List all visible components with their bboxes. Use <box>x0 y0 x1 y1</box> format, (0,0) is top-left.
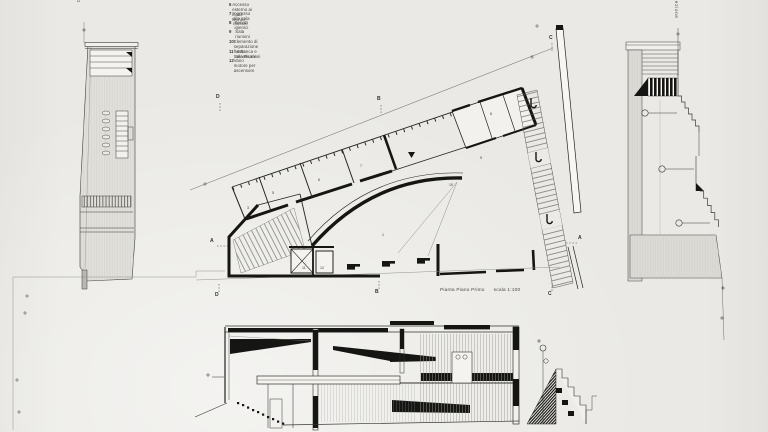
plan-caption-title: Pianta Piano Primo <box>440 289 485 294</box>
section-marker-b-top: B <box>377 97 381 102</box>
plan-caption: Pianta Piano Primo scala 1:100 <box>440 289 520 294</box>
room-number: 9 <box>480 157 482 161</box>
legend-item-text: Sala riunioni <box>235 29 252 39</box>
plan-caption-scale: scala 1:100 <box>494 289 521 294</box>
room-number: 1 <box>382 234 384 238</box>
room-number: 5 <box>272 192 274 196</box>
section-marker-c-top: C <box>549 36 553 41</box>
left-section-drawing <box>80 22 138 289</box>
room-number: 10 <box>449 184 453 188</box>
section-marker-d-top: D <box>216 95 220 100</box>
right-section-title: Sezione <box>672 0 677 19</box>
left-section-title: Sezione D-D <box>74 0 79 3</box>
section-marker-a-right: A <box>578 236 582 241</box>
room-number: 6 <box>318 179 320 183</box>
room-number: 11 <box>302 267 306 271</box>
legend-item: 12 Vano motore per ascensore <box>229 58 259 73</box>
right-section-drawing <box>626 28 725 340</box>
bottom-section-drawing <box>195 321 597 430</box>
drawing-sheet: Sezione D-D Sezione 6 Accesso esterno ai… <box>0 0 768 432</box>
room-number: 3 <box>247 207 249 211</box>
room-number: 8 <box>490 113 492 117</box>
section-marker-a-left: A <box>210 239 214 244</box>
legend-item-text: Vano motore per ascensore <box>234 58 259 73</box>
legend-item: 9 Sala riunioni <box>229 29 253 39</box>
room-number: 12 <box>320 267 324 271</box>
section-marker-c-bottom: C <box>548 292 552 297</box>
sheet-dimension-lines <box>13 271 225 430</box>
section-marker-b-bottom: B <box>375 290 379 295</box>
section-marker-d-bottom: D <box>215 293 219 298</box>
room-number: 7 <box>360 165 362 169</box>
architectural-linework <box>0 0 768 432</box>
